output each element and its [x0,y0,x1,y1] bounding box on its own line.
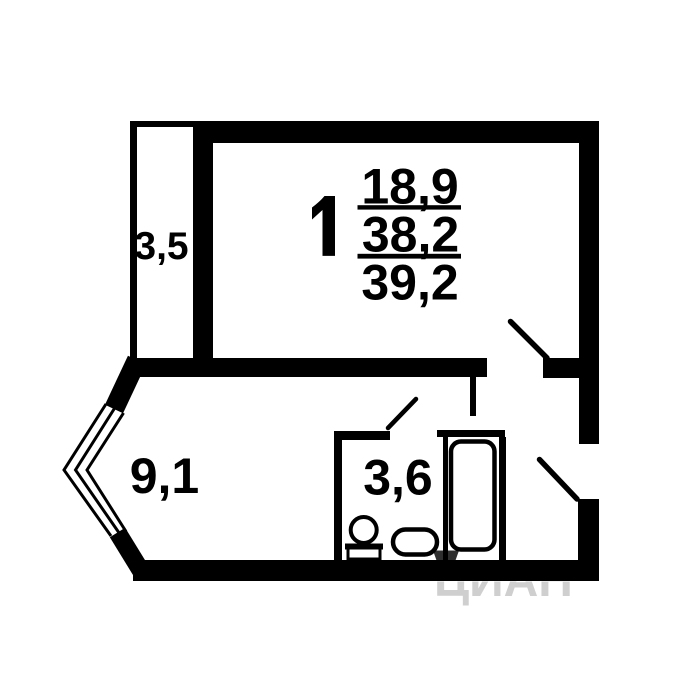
svg-text:39,2: 39,2 [361,255,458,311]
svg-text:3,6: 3,6 [363,450,433,506]
svg-text:9,1: 9,1 [130,448,200,504]
svg-text:3,5: 3,5 [134,225,188,268]
